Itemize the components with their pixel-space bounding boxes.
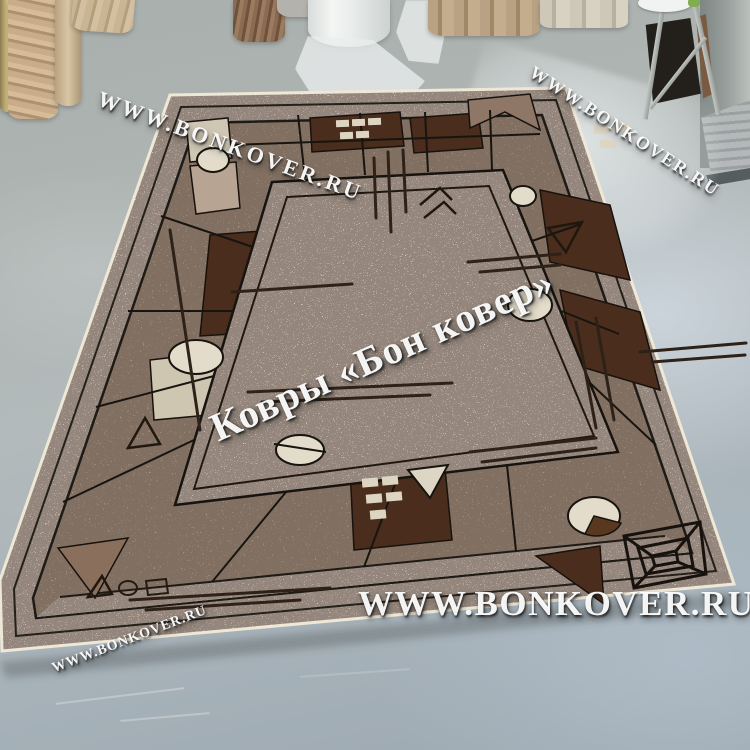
- photo-scene: WWW.BONKOVER.RU WWW.BONKOVER.RU Ковры «Б…: [0, 0, 750, 750]
- watermark-site-url: WWW.BONKOVER.RU: [358, 584, 750, 624]
